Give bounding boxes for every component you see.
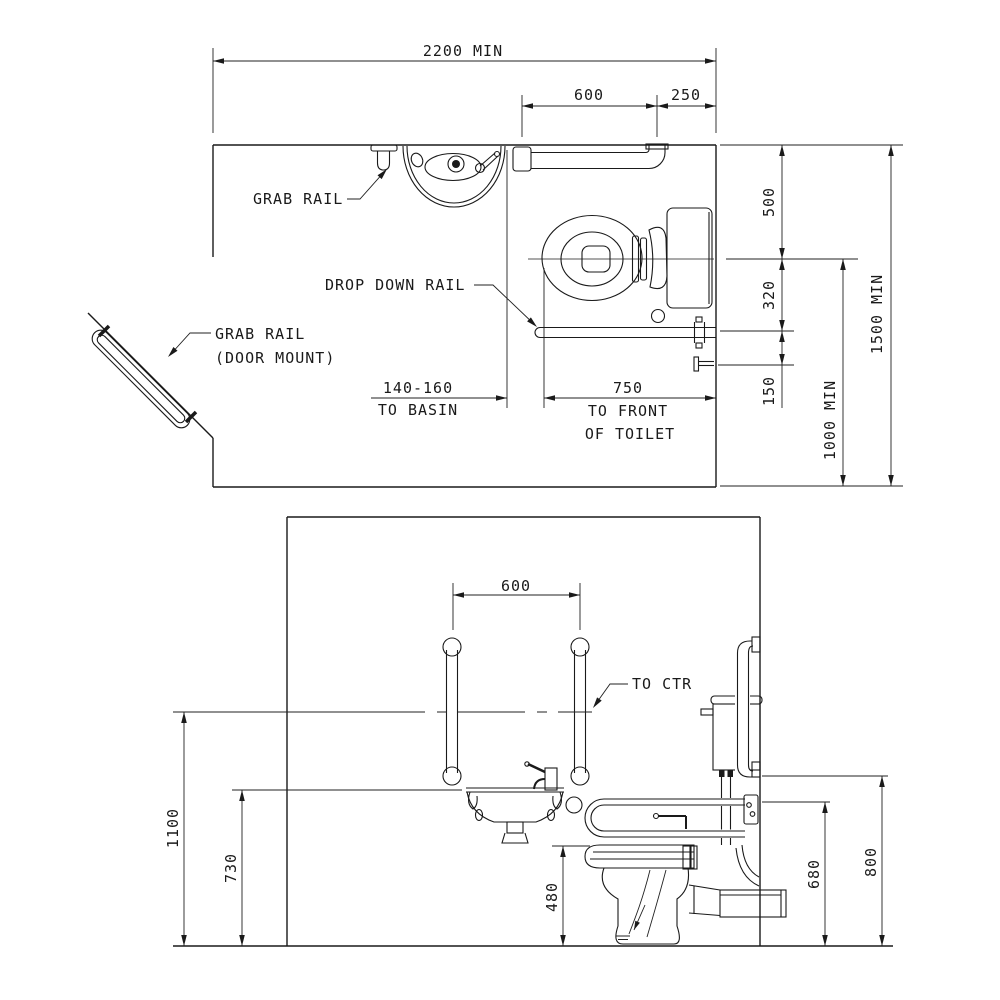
dim-rail-spacing: 600	[501, 577, 531, 595]
plan-dimensions: 2200 MIN 600 250 500 320 150	[213, 42, 903, 486]
dim-rail-to-holder: 150	[760, 376, 778, 406]
toilet-roll-holder-plan	[694, 357, 714, 371]
vertical-grab-rail-2	[571, 638, 589, 785]
cistern-plan	[667, 208, 712, 308]
dim-toilet-front-caption2: OF TOILET	[585, 425, 675, 443]
dim-centerline-to-front: 1000 MIN	[821, 380, 839, 460]
flush-handle	[701, 709, 713, 715]
basin-grab-rail	[371, 145, 397, 170]
dim-seat-height: 480	[543, 882, 561, 912]
drop-down-rail-plan	[535, 317, 716, 348]
door-rail-label-2: (DOOR MOUNT)	[215, 349, 335, 367]
dim-overall-width: 2200 MIN	[423, 42, 503, 60]
corner-rail-elevation	[735, 637, 760, 777]
dim-rail-length: 600	[574, 86, 604, 104]
dim-drop-rail-height: 680	[805, 859, 823, 889]
toilet-elevation	[585, 845, 786, 944]
dim-room-depth: 1500 MIN	[868, 274, 886, 354]
dim-basin-gap: 140-160	[383, 379, 453, 397]
dim-rail-to-wall: 250	[671, 86, 701, 104]
cistern-elevation	[701, 696, 762, 886]
toilet-plan	[528, 208, 714, 323]
toilet-roll-hook	[654, 814, 687, 830]
plan-labels: GRAB RAIL DROP DOWN RAIL GRAB RAIL (DOOR…	[168, 169, 537, 367]
dim-rail-centre-height: 1100	[164, 808, 182, 848]
basin-plan	[403, 146, 505, 207]
grab-rail-label: GRAB RAIL	[253, 190, 343, 208]
dim-side-rail-height: 800	[862, 847, 880, 877]
door-grab-rail	[89, 326, 196, 431]
accessible-wc-drawing: GRAB RAIL DROP DOWN RAIL GRAB RAIL (DOOR…	[0, 0, 1000, 1000]
wall-grab-rail-plan	[513, 144, 668, 171]
basin-elevation	[466, 762, 564, 843]
dim-toilet-front-caption1: TO FRONT	[588, 402, 668, 420]
basin-tap	[525, 762, 557, 790]
to-ctr-label: TO CTR	[632, 675, 692, 693]
drop-down-rail-label: DROP DOWN RAIL	[325, 276, 465, 294]
elevation-view: TO CTR 600 1100 730 480	[164, 517, 893, 946]
vertical-grab-rail-1	[443, 638, 461, 785]
drawing-sheet: GRAB RAIL DROP DOWN RAIL GRAB RAIL (DOOR…	[0, 0, 1000, 1000]
door	[88, 313, 213, 438]
door-rail-label-1: GRAB RAIL	[215, 325, 305, 343]
dim-centerline-to-rail: 320	[760, 280, 778, 310]
soil-pipe	[720, 890, 786, 917]
dim-basin-gap-caption: TO BASIN	[378, 401, 458, 419]
dim-basin-height: 730	[222, 853, 240, 883]
dim-wall-to-centerline: 500	[760, 187, 778, 217]
drop-down-rail-elevation	[566, 795, 758, 838]
plan-view: GRAB RAIL DROP DOWN RAIL GRAB RAIL (DOOR…	[88, 42, 903, 487]
rail-centerline: TO CTR	[173, 675, 692, 712]
dim-toilet-front: 750	[613, 379, 643, 397]
elevation-wall	[173, 517, 893, 946]
